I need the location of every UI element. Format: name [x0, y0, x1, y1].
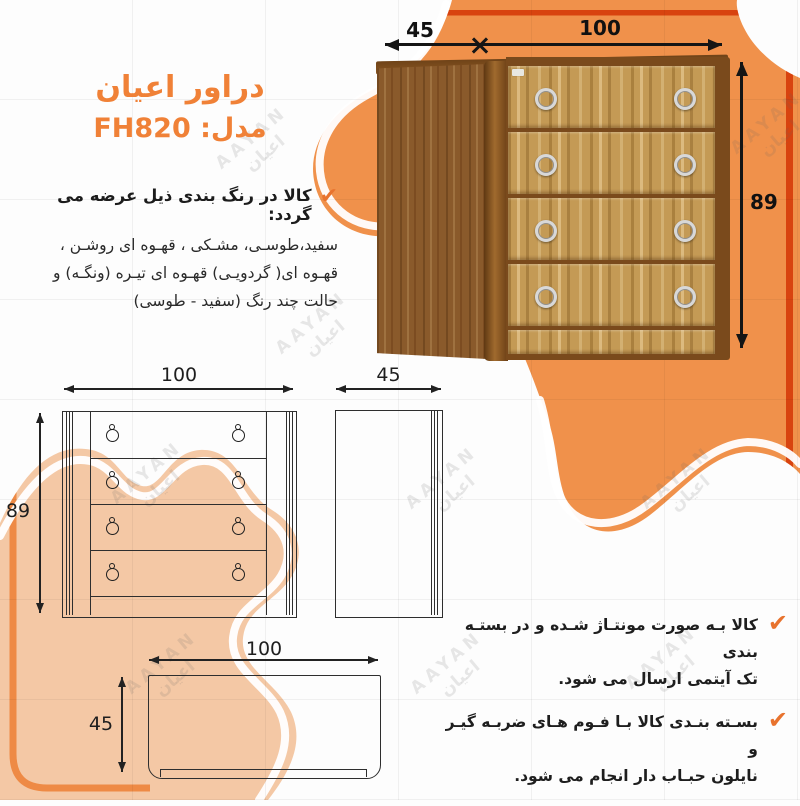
- note-line: نایلون حبـاب دار انجام می شود.: [438, 763, 758, 790]
- note-line: تک آیتمی ارسال می شود.: [438, 666, 758, 693]
- ring-handle-icon: [232, 568, 245, 581]
- ring-handle-icon: [232, 429, 245, 442]
- front-view-height-label: 89: [2, 500, 34, 522]
- ring-handle-icon: [106, 476, 119, 489]
- product-model: مدل: FH820: [50, 113, 310, 144]
- top-view-depth-dim: [121, 677, 123, 772]
- front-view-right-panel-line: [286, 412, 287, 615]
- shipping-notes: ✔ کالا بـه صورت مونتـاژ شـده و در بستـه …: [438, 612, 788, 806]
- side-view-width-label: 45: [335, 364, 442, 386]
- drawer-3: [508, 198, 715, 260]
- dresser-drawers: [508, 66, 715, 356]
- top-view-inner-tick: [366, 769, 367, 777]
- deep-orange-top-stripe: [440, 10, 800, 16]
- check-icon: ✔: [768, 709, 788, 731]
- dim-depth-label: 45: [395, 18, 445, 42]
- dresser-corner-edge: [484, 61, 508, 361]
- dresser-front-frame: [506, 57, 730, 360]
- ring-handle-icon: [232, 476, 245, 489]
- side-view-width-dim: [336, 388, 441, 390]
- front-view-drawer-divider: [90, 550, 266, 551]
- check-icon: ✔: [320, 186, 338, 208]
- color-note-line: قهـوه ای( گردویـی) قهـوه ای تیـره (ونگـه…: [16, 259, 338, 287]
- color-note-line: سفید،طوسـی، مشـکی ، قهـوه ای روشـن ،: [16, 231, 338, 259]
- ring-handle-icon: [674, 88, 696, 110]
- front-view-left-panel-line: [66, 412, 67, 615]
- note-line: بسـته بنـدی کالا بـا فـوم هـای ضربـه گیـ…: [438, 709, 758, 763]
- front-view-outline: [62, 411, 297, 618]
- ring-handle-icon: [535, 220, 557, 242]
- note-assembled: ✔ کالا بـه صورت مونتـاژ شـده و در بستـه …: [438, 612, 788, 693]
- top-view-depth-label: 45: [86, 713, 116, 735]
- ring-handle-icon: [106, 429, 119, 442]
- dim-height-label: 89: [750, 190, 790, 214]
- color-note-heading: کالا در رنگ بندی ذیل عرضه می گردد:: [16, 186, 312, 224]
- infographic-canvas: { "header": { "title": "دراور اعیان", "m…: [0, 0, 800, 800]
- dim-line-top: [385, 43, 722, 46]
- drawer-2: [508, 132, 715, 194]
- front-view-drawer-divider: [90, 504, 266, 505]
- top-view-inner-tick: [160, 769, 161, 777]
- front-view-width-dim: [64, 388, 293, 390]
- side-view-outline: [335, 410, 443, 618]
- drawer-1: [508, 66, 715, 128]
- check-icon: ✔: [768, 612, 788, 634]
- ring-handle-icon: [535, 286, 557, 308]
- side-view-edge-line: [437, 411, 438, 615]
- ring-handle-icon: [106, 568, 119, 581]
- top-view-width-dim: [149, 659, 378, 661]
- side-view-edge-line: [431, 411, 432, 615]
- front-view-drawer-divider: [90, 596, 266, 597]
- top-view-inner-bottom-line: [160, 769, 367, 770]
- dim-x-marker: [470, 35, 490, 55]
- ring-handle-icon: [674, 220, 696, 242]
- top-view-outline: [148, 675, 381, 779]
- title-block: دراور اعیان مدل: FH820: [50, 70, 310, 144]
- ring-handle-icon: [535, 154, 557, 176]
- front-view-right-panel-line: [289, 412, 290, 615]
- product-photo-dresser: [374, 52, 730, 364]
- side-view-edge-line: [434, 411, 435, 615]
- front-view-height-dim: [39, 413, 41, 613]
- front-view-right-panel-boundary: [266, 412, 267, 615]
- color-note-line: حالت چند رنگ (سفید - طوسی): [16, 287, 338, 315]
- front-view-left-panel-boundary: [90, 412, 91, 615]
- ring-handle-icon: [674, 154, 696, 176]
- product-title: دراور اعیان: [50, 70, 310, 105]
- top-view-width-label: 100: [148, 638, 380, 660]
- ring-handle-icon: [106, 522, 119, 535]
- front-view-drawer-divider: [90, 458, 266, 459]
- brand-sticker: [512, 69, 524, 76]
- color-note: ✔ کالا در رنگ بندی ذیل عرضه می گردد: سفی…: [16, 186, 338, 315]
- note-line: کالا بـه صورت مونتـاژ شـده و در بستـه بن…: [438, 612, 758, 666]
- ring-handle-icon: [232, 522, 245, 535]
- drawer-4: [508, 264, 715, 326]
- dim-width-label: 100: [560, 16, 640, 40]
- note-packaging: ✔ بسـته بنـدی کالا بـا فـوم هـای ضربـه گ…: [438, 709, 788, 790]
- front-view-right-panel-line: [292, 412, 293, 615]
- ring-handle-icon: [535, 88, 557, 110]
- dresser-side-panel: [377, 64, 487, 359]
- dresser-bottom-rail: [508, 330, 715, 354]
- dim-line-height: [740, 62, 743, 348]
- front-view-left-panel-line: [72, 412, 73, 615]
- front-view-width-label: 100: [62, 364, 296, 386]
- ring-handle-icon: [674, 286, 696, 308]
- front-view-left-panel-line: [69, 412, 70, 615]
